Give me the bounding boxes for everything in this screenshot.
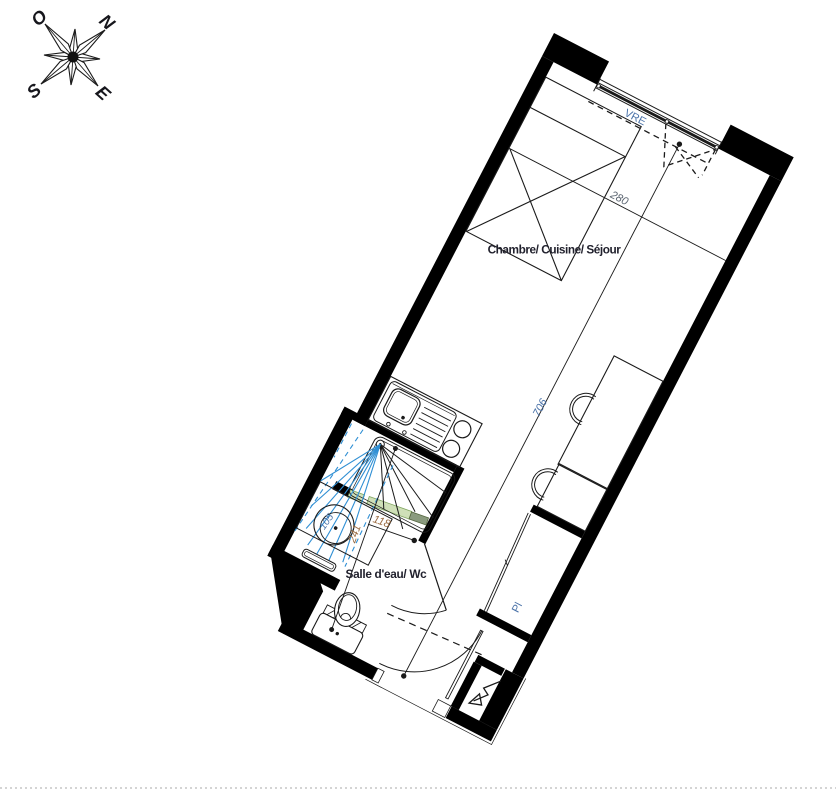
svg-text:Salle d'eau/ Wc: Salle d'eau/ Wc <box>346 567 428 581</box>
svg-text:Chambre/ Cuisine/ Séjour: Chambre/ Cuisine/ Séjour <box>488 243 622 257</box>
